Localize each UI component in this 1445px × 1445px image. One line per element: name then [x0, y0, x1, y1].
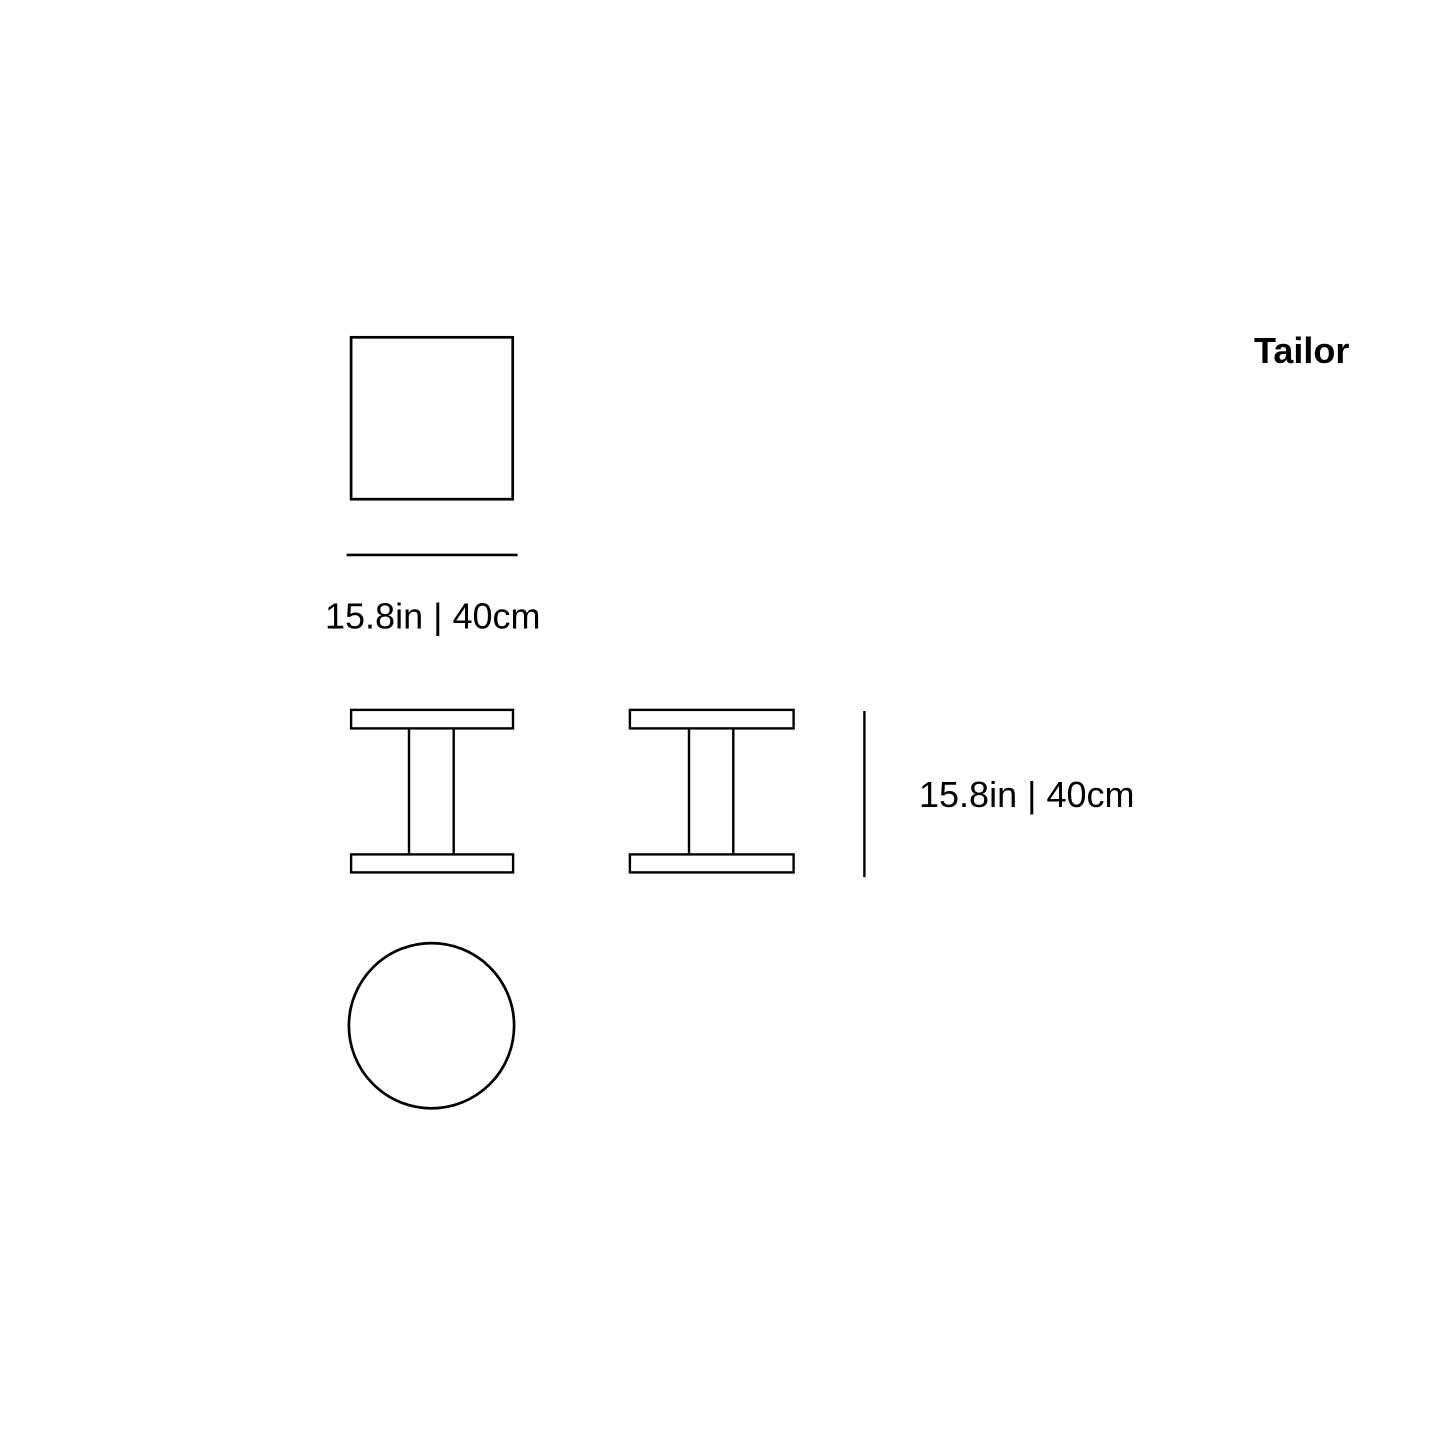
svg-text:Tailor: Tailor — [1254, 330, 1349, 371]
svg-text:15.8in | 40cm: 15.8in | 40cm — [325, 596, 540, 637]
svg-text:15.8in | 40cm: 15.8in | 40cm — [919, 774, 1134, 815]
